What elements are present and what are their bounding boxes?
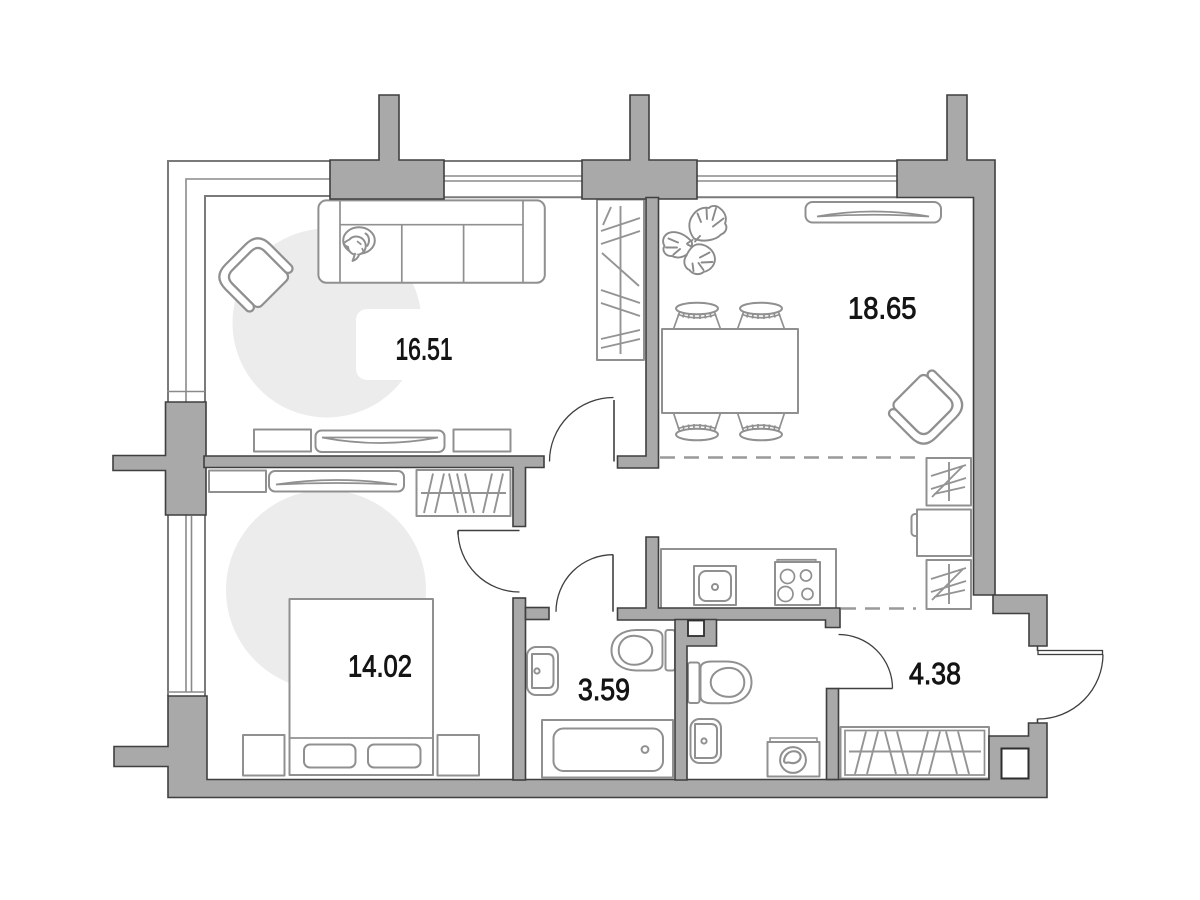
svg-text:14.02: 14.02 — [348, 649, 412, 684]
svg-text:16.51: 16.51 — [396, 332, 453, 367]
svg-text:18.65: 18.65 — [848, 291, 917, 326]
svg-text:4.38: 4.38 — [909, 656, 961, 691]
svg-text:3.59: 3.59 — [578, 672, 630, 707]
